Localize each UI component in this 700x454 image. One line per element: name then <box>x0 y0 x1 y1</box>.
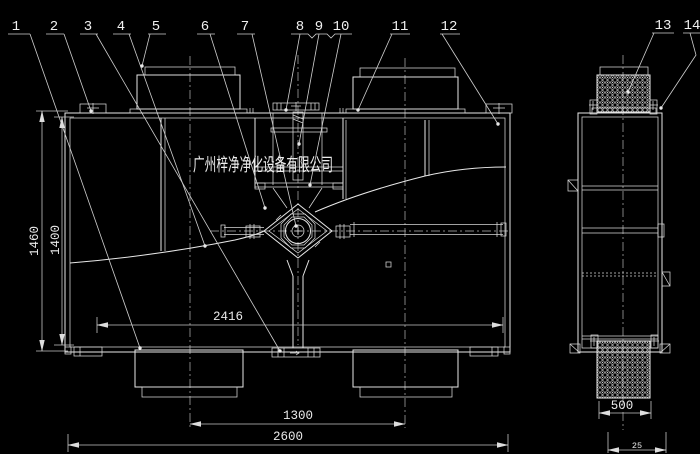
part-label-14: 14 <box>684 18 700 34</box>
cad-drawing: 1 2 3 4 5 6 7 8 9 10 11 12 13 14 <box>0 0 700 454</box>
cabinet-shell <box>65 113 510 352</box>
top-duct-left <box>130 67 247 113</box>
svg-text:2416: 2416 <box>213 310 243 324</box>
sensor-box <box>386 262 391 267</box>
bottom-port-left <box>135 350 243 397</box>
svg-text:1460: 1460 <box>28 226 42 256</box>
dimensions: 1460 1400 2416 1300 2600 <box>28 111 666 453</box>
part-label-1: 1 <box>12 19 20 35</box>
top-access-box <box>273 102 319 111</box>
part-label-11: 11 <box>392 19 409 35</box>
centerlines <box>190 55 623 430</box>
part-label-5: 5 <box>152 19 160 35</box>
svg-text:500: 500 <box>611 399 634 413</box>
part-label-7: 7 <box>241 19 249 35</box>
dim-port-spacing: 1300 <box>190 409 405 424</box>
cad-drawing-viewport: 1 2 3 4 5 6 7 8 9 10 11 12 13 14 <box>0 0 700 454</box>
bottom-port-right <box>353 350 458 397</box>
part-label-8: 8 <box>296 19 304 35</box>
svg-text:1300: 1300 <box>283 409 313 423</box>
lifting-lug-left <box>80 103 106 114</box>
side-view <box>568 67 670 398</box>
svg-text:1400: 1400 <box>49 225 63 255</box>
dim-width-inner: 2416 <box>97 310 503 333</box>
svg-text:2600: 2600 <box>273 430 303 444</box>
front-view <box>65 67 512 397</box>
side-top-filter <box>589 67 658 114</box>
part-label-10: 10 <box>333 19 350 35</box>
part-labels: 1 2 3 4 5 6 7 8 9 10 11 12 13 14 <box>8 18 700 38</box>
dim-width-overall: 2600 <box>68 430 508 452</box>
part-label-2: 2 <box>50 19 58 35</box>
fan-bearing-right <box>336 224 350 239</box>
part-label-12: 12 <box>441 19 458 35</box>
label-underlines <box>8 33 700 38</box>
part-label-4: 4 <box>117 19 125 35</box>
side-internal-bands <box>568 180 670 339</box>
part-label-3: 3 <box>84 19 92 35</box>
dim-side-bottom: 25 <box>608 432 666 453</box>
part-label-9: 9 <box>315 19 323 35</box>
part-label-13: 13 <box>655 18 672 34</box>
scroll-baffle-curve <box>70 167 506 263</box>
top-duct-right <box>346 68 465 113</box>
fan-bearing-left <box>246 224 260 239</box>
side-body <box>578 113 662 352</box>
side-bottom-filter <box>590 335 659 398</box>
leader-lines <box>30 33 696 353</box>
lifting-lug-right <box>486 103 512 114</box>
part-label-6: 6 <box>201 19 209 35</box>
dim-side-width: 500 <box>599 399 651 419</box>
fan-assembly <box>221 204 506 348</box>
svg-text:25: 25 <box>632 441 642 451</box>
company-watermark: 广州梓净净化设备有限公司 <box>193 155 333 176</box>
